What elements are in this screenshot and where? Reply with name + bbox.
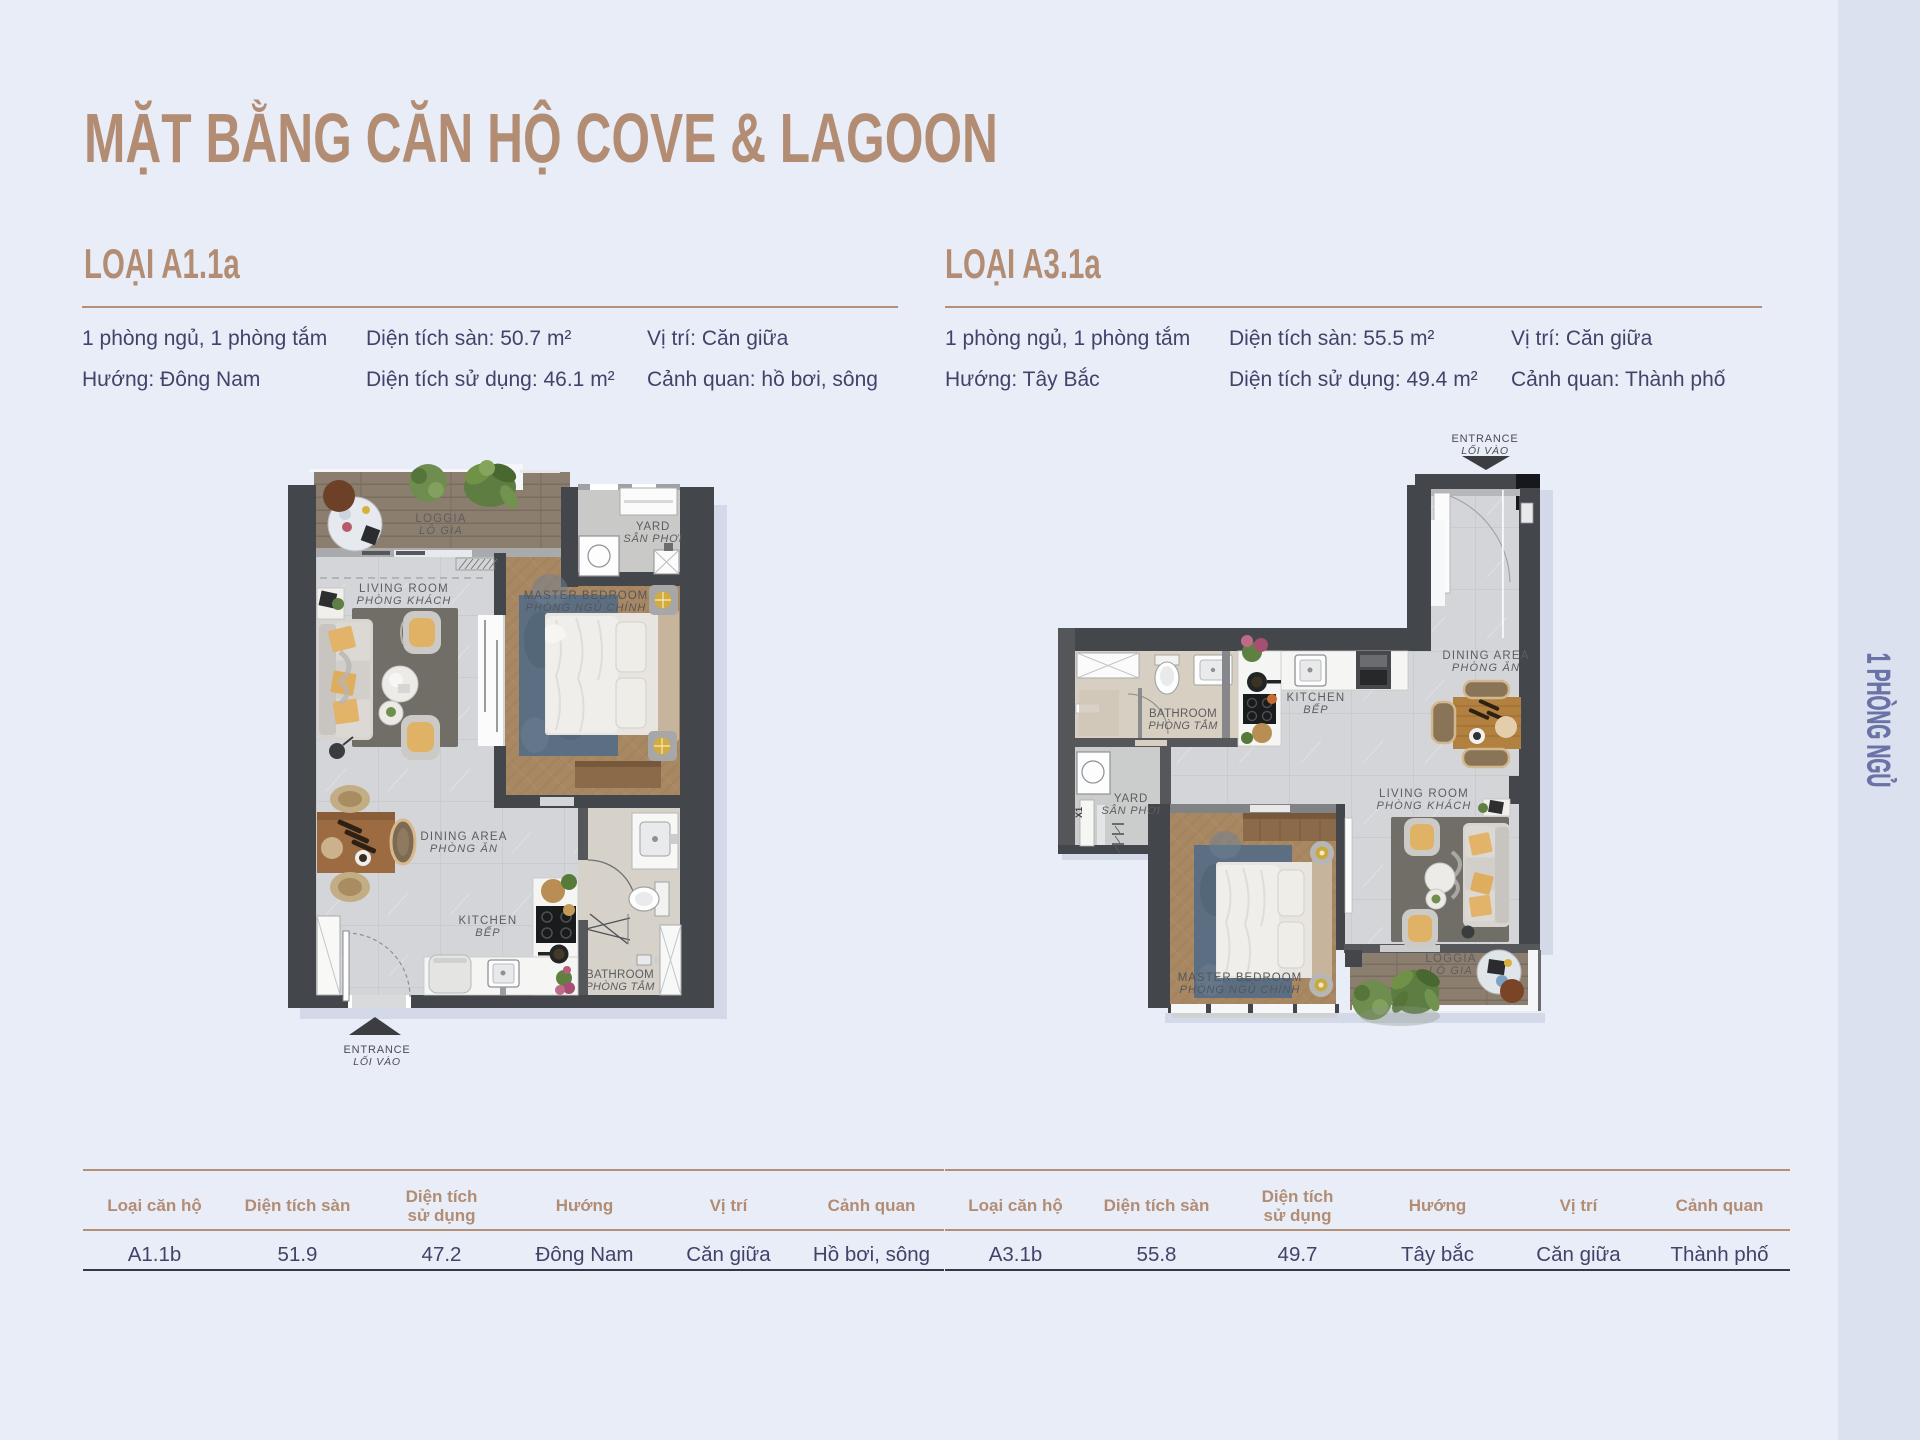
svg-text:ENTRANCE: ENTRANCE [344, 1044, 411, 1056]
svg-text:LOGGIA: LOGGIA [415, 513, 466, 525]
svg-text:YARD: YARD [636, 521, 670, 533]
svg-text:LỐI VÀO: LỐI VÀO [1461, 444, 1509, 457]
svg-text:BẾP: BẾP [1303, 703, 1329, 716]
svg-text:DINING AREA: DINING AREA [1442, 650, 1529, 662]
svg-text:SÂN PHƠI: SÂN PHƠI [623, 532, 682, 545]
svg-text:MASTER BEDROOM: MASTER BEDROOM [524, 590, 649, 602]
svg-text:LÔ GIA: LÔ GIA [419, 524, 463, 537]
svg-text:BATHROOM: BATHROOM [586, 969, 654, 981]
svg-text:ENTRANCE: ENTRANCE [1452, 433, 1519, 445]
svg-text:KITCHEN: KITCHEN [1287, 692, 1346, 704]
svg-text:BẾP: BẾP [475, 926, 501, 939]
svg-text:LÔ GIA: LÔ GIA [1429, 964, 1473, 977]
svg-text:DINING AREA: DINING AREA [420, 831, 507, 843]
svg-text:PHÒNG ĂN: PHÒNG ĂN [1452, 661, 1520, 674]
svg-text:LIVING ROOM: LIVING ROOM [1379, 788, 1469, 800]
svg-text:BATHROOM: BATHROOM [1149, 708, 1217, 720]
svg-text:YARD: YARD [1114, 793, 1148, 805]
svg-text:PHÒNG KHÁCH: PHÒNG KHÁCH [1376, 799, 1471, 812]
svg-text:X1: X1 [1074, 807, 1084, 818]
svg-text:MASTER BEDROOM: MASTER BEDROOM [1178, 972, 1303, 984]
svg-text:PHÒNG TẮM: PHÒNG TẮM [1148, 719, 1218, 732]
svg-text:PHÒNG NGỦ CHÍNH: PHÒNG NGỦ CHÍNH [526, 601, 647, 614]
svg-text:SÂN PHƠI: SÂN PHƠI [1101, 804, 1160, 817]
svg-text:PHÒNG NGỦ CHÍNH: PHÒNG NGỦ CHÍNH [1180, 983, 1301, 996]
svg-text:KITCHEN: KITCHEN [459, 915, 518, 927]
svg-text:PHÒNG ĂN: PHÒNG ĂN [430, 842, 498, 855]
svg-text:LIVING ROOM: LIVING ROOM [359, 583, 449, 595]
svg-text:PHÒNG TẮM: PHÒNG TẮM [585, 980, 655, 993]
svg-text:PHÒNG KHÁCH: PHÒNG KHÁCH [356, 594, 451, 607]
svg-text:LOGGIA: LOGGIA [1425, 953, 1476, 965]
svg-text:LỐI VÀO: LỐI VÀO [353, 1055, 401, 1068]
